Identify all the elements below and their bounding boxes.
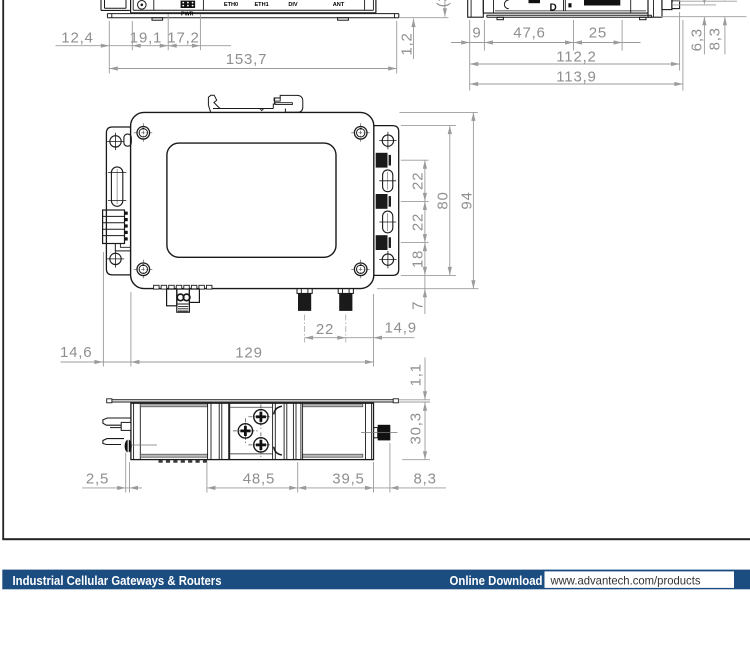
- svg-text:153,7: 153,7: [226, 51, 268, 68]
- svg-text:112,2: 112,2: [556, 48, 596, 65]
- svg-text:8,3: 8,3: [414, 470, 437, 487]
- svg-text:6,3: 6,3: [689, 28, 706, 51]
- svg-text:14,6: 14,6: [60, 344, 92, 361]
- svg-text:Online Download: Online Download: [450, 573, 543, 588]
- svg-text:22: 22: [410, 213, 427, 231]
- svg-text:1,2: 1,2: [399, 32, 416, 55]
- svg-text:94: 94: [459, 191, 476, 209]
- svg-text:80: 80: [435, 191, 452, 209]
- svg-text:17,2: 17,2: [167, 29, 199, 46]
- svg-text:129: 129: [235, 345, 262, 362]
- svg-text:22: 22: [316, 321, 334, 338]
- svg-text:2,5: 2,5: [86, 470, 109, 487]
- svg-text:48,5: 48,5: [243, 470, 275, 487]
- svg-text:39,5: 39,5: [332, 470, 364, 487]
- svg-text:14,9: 14,9: [385, 319, 417, 336]
- svg-text:Industrial Cellular Gateways &: Industrial Cellular Gateways & Routers: [13, 573, 222, 588]
- svg-text:25: 25: [589, 24, 607, 41]
- svg-text:7: 7: [410, 301, 427, 310]
- svg-text:19,1: 19,1: [130, 29, 162, 46]
- svg-text:ETH1: ETH1: [254, 2, 268, 8]
- svg-text:12,4: 12,4: [61, 29, 93, 46]
- svg-text:8,3: 8,3: [706, 27, 723, 50]
- svg-text:9: 9: [472, 24, 481, 41]
- svg-text:47,6: 47,6: [513, 24, 545, 41]
- svg-text:18: 18: [410, 250, 427, 268]
- svg-text:1,1: 1,1: [408, 363, 425, 386]
- svg-text:DIV: DIV: [288, 2, 298, 8]
- svg-text:22: 22: [410, 172, 427, 190]
- svg-text:PWR: PWR: [181, 12, 194, 18]
- svg-text:ANT: ANT: [333, 2, 345, 8]
- svg-text:113,9: 113,9: [556, 68, 596, 85]
- svg-text:www.advantech.com/products: www.advantech.com/products: [550, 574, 701, 588]
- svg-text:30,3: 30,3: [408, 412, 425, 444]
- svg-text:ETH0: ETH0: [224, 2, 238, 8]
- svg-text:(3,5): (3,5): [435, 0, 452, 7]
- svg-text:D: D: [550, 3, 557, 14]
